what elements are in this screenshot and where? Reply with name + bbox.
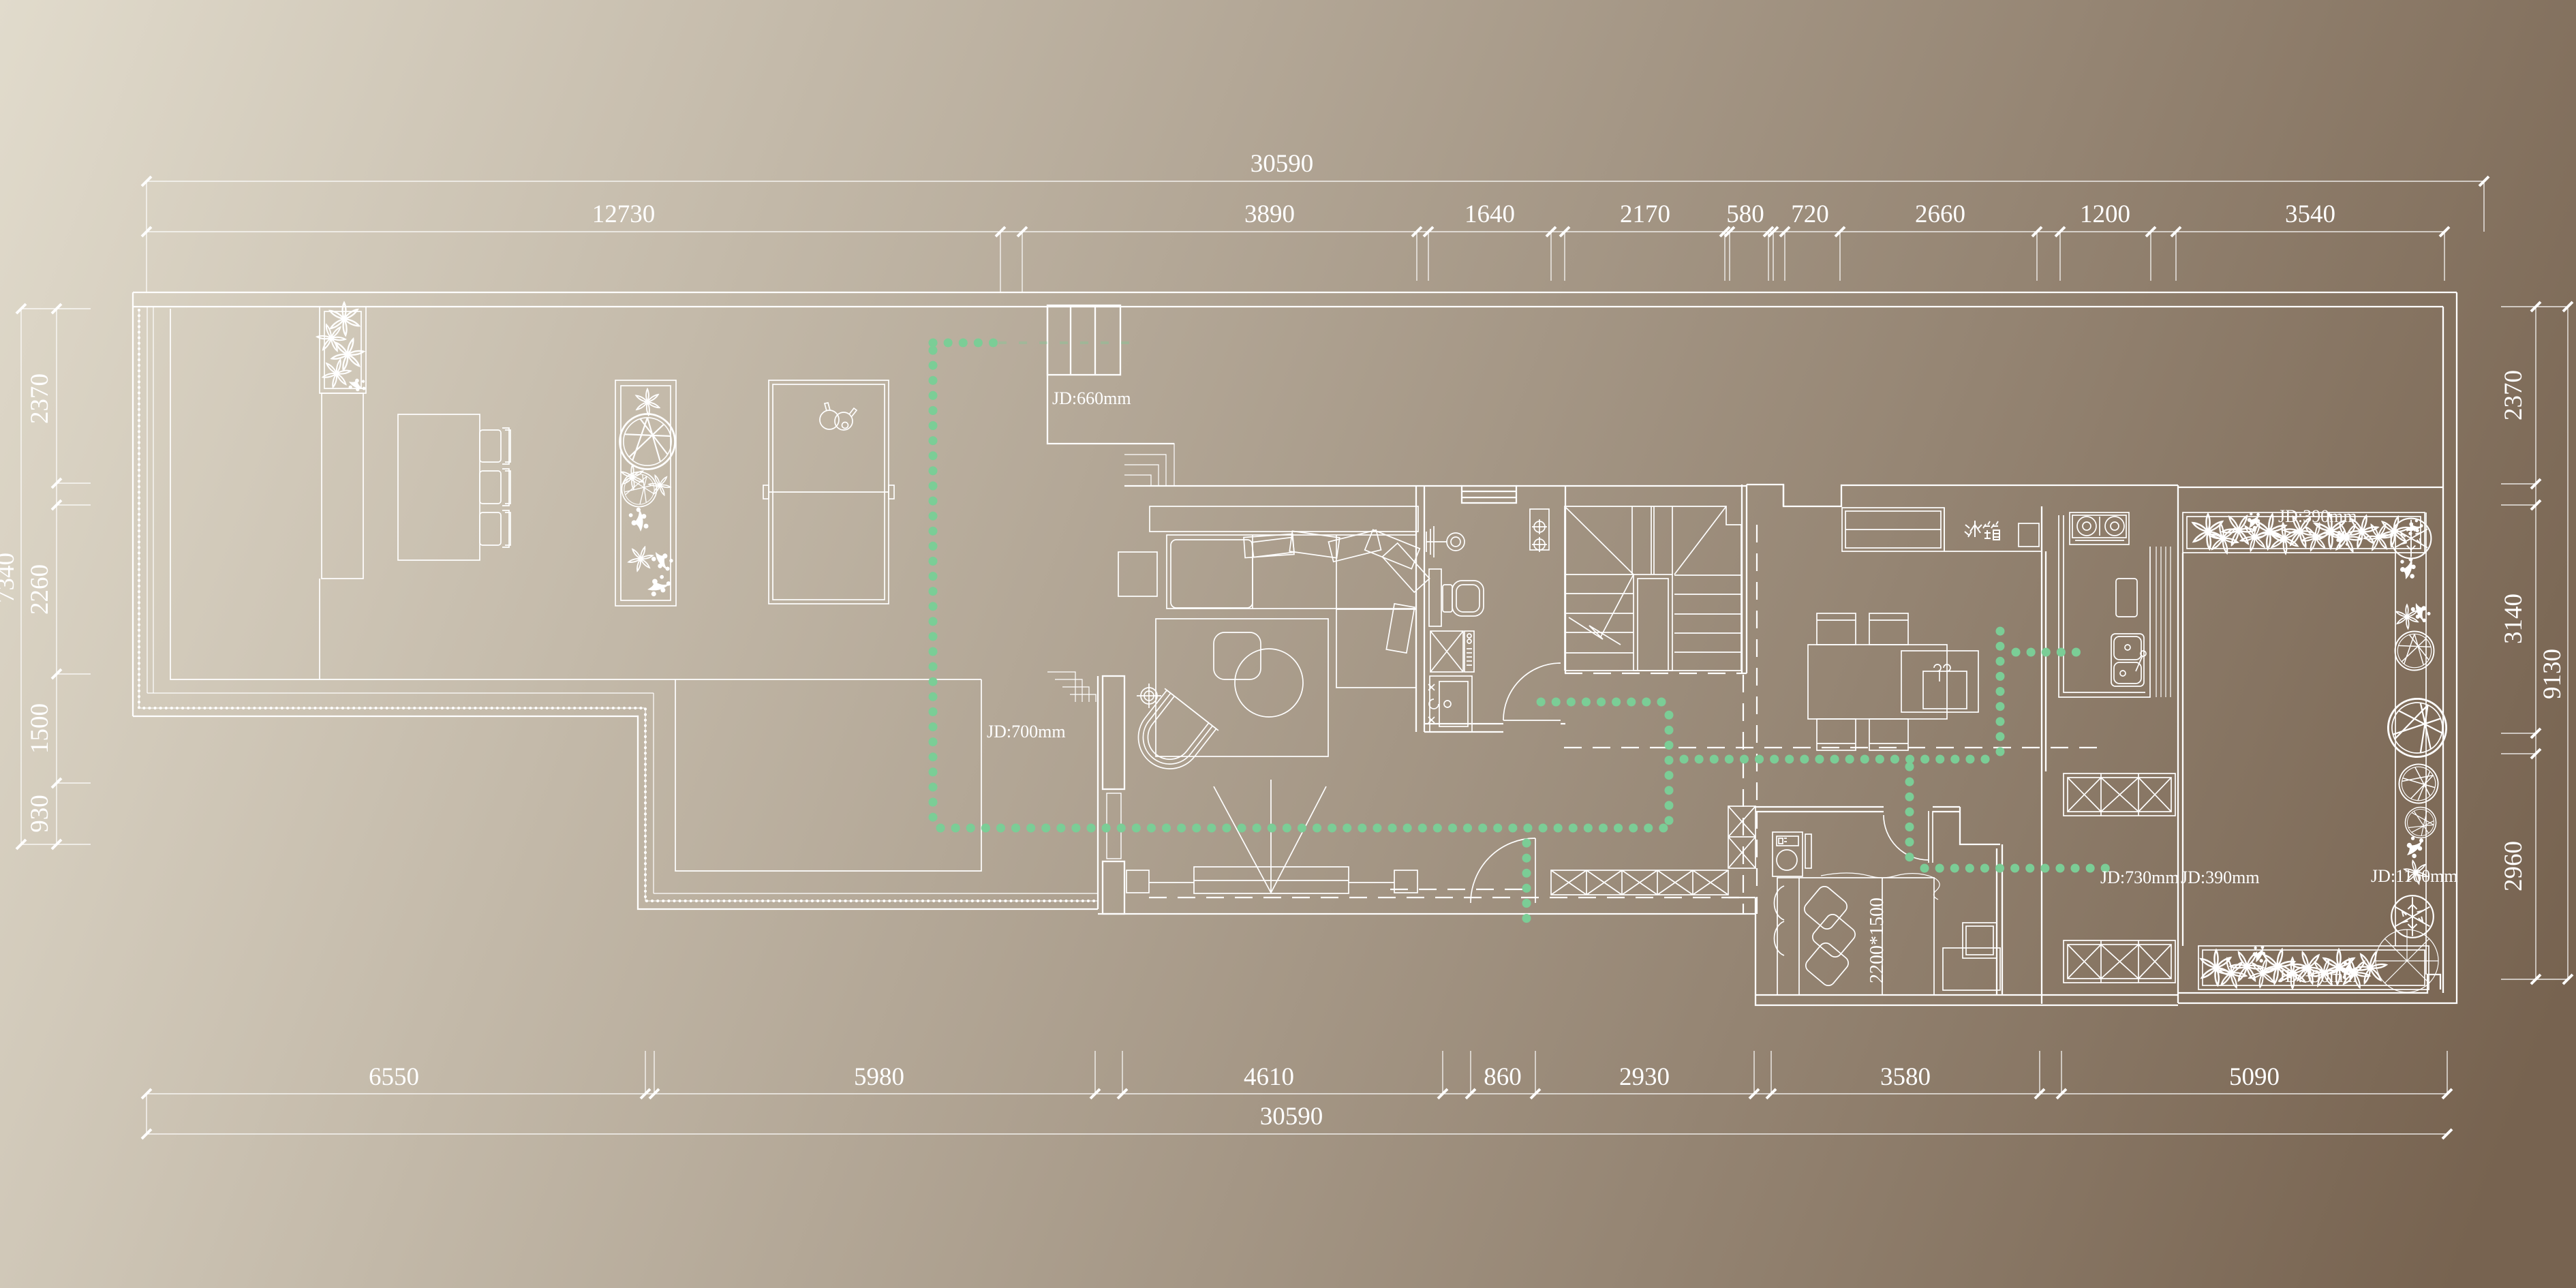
svg-text:1200: 1200 (2080, 200, 2130, 228)
svg-text:930: 930 (26, 795, 54, 833)
svg-text:1500: 1500 (26, 703, 54, 754)
svg-text:720: 720 (1791, 200, 1829, 228)
svg-text:JD:390mm: JD:390mm (2278, 506, 2357, 526)
svg-text:2200*1500: 2200*1500 (1867, 898, 1888, 983)
svg-text:4610: 4610 (1244, 1063, 1294, 1091)
svg-text:JD:390mm: JD:390mm (2278, 966, 2357, 986)
svg-text:2660: 2660 (1915, 200, 1965, 228)
svg-text:7340: 7340 (0, 553, 20, 603)
svg-text:1640: 1640 (1465, 200, 1515, 228)
svg-text:JD:390mm: JD:390mm (2181, 868, 2260, 887)
svg-text:3540: 3540 (2285, 200, 2335, 228)
svg-text:860: 860 (1484, 1063, 1522, 1091)
svg-text:JD:1160mm: JD:1160mm (2371, 866, 2458, 886)
svg-text:2370: 2370 (26, 373, 54, 424)
svg-text:3580: 3580 (1880, 1063, 1931, 1091)
svg-text:580: 580 (1726, 200, 1764, 228)
svg-text:6550: 6550 (369, 1063, 419, 1091)
svg-text:5980: 5980 (854, 1063, 904, 1091)
svg-text:9130: 9130 (2539, 649, 2566, 699)
svg-text:2370: 2370 (2500, 370, 2528, 420)
svg-text:2960: 2960 (2500, 841, 2528, 891)
svg-text:30590: 30590 (1260, 1103, 1323, 1131)
svg-text:JD:730mm: JD:730mm (2100, 868, 2179, 887)
svg-text:2260: 2260 (26, 564, 54, 615)
svg-text:JD:660mm: JD:660mm (1052, 388, 1131, 408)
svg-text:5090: 5090 (2229, 1063, 2280, 1091)
svg-text:JD:700mm: JD:700mm (987, 722, 1066, 741)
svg-text:12730: 12730 (592, 200, 656, 228)
svg-text:30590: 30590 (1251, 150, 1314, 178)
svg-text:3140: 3140 (2500, 594, 2528, 644)
svg-text:3890: 3890 (1244, 200, 1295, 228)
svg-text:2170: 2170 (1620, 200, 1670, 228)
svg-text:2930: 2930 (1619, 1063, 1670, 1091)
